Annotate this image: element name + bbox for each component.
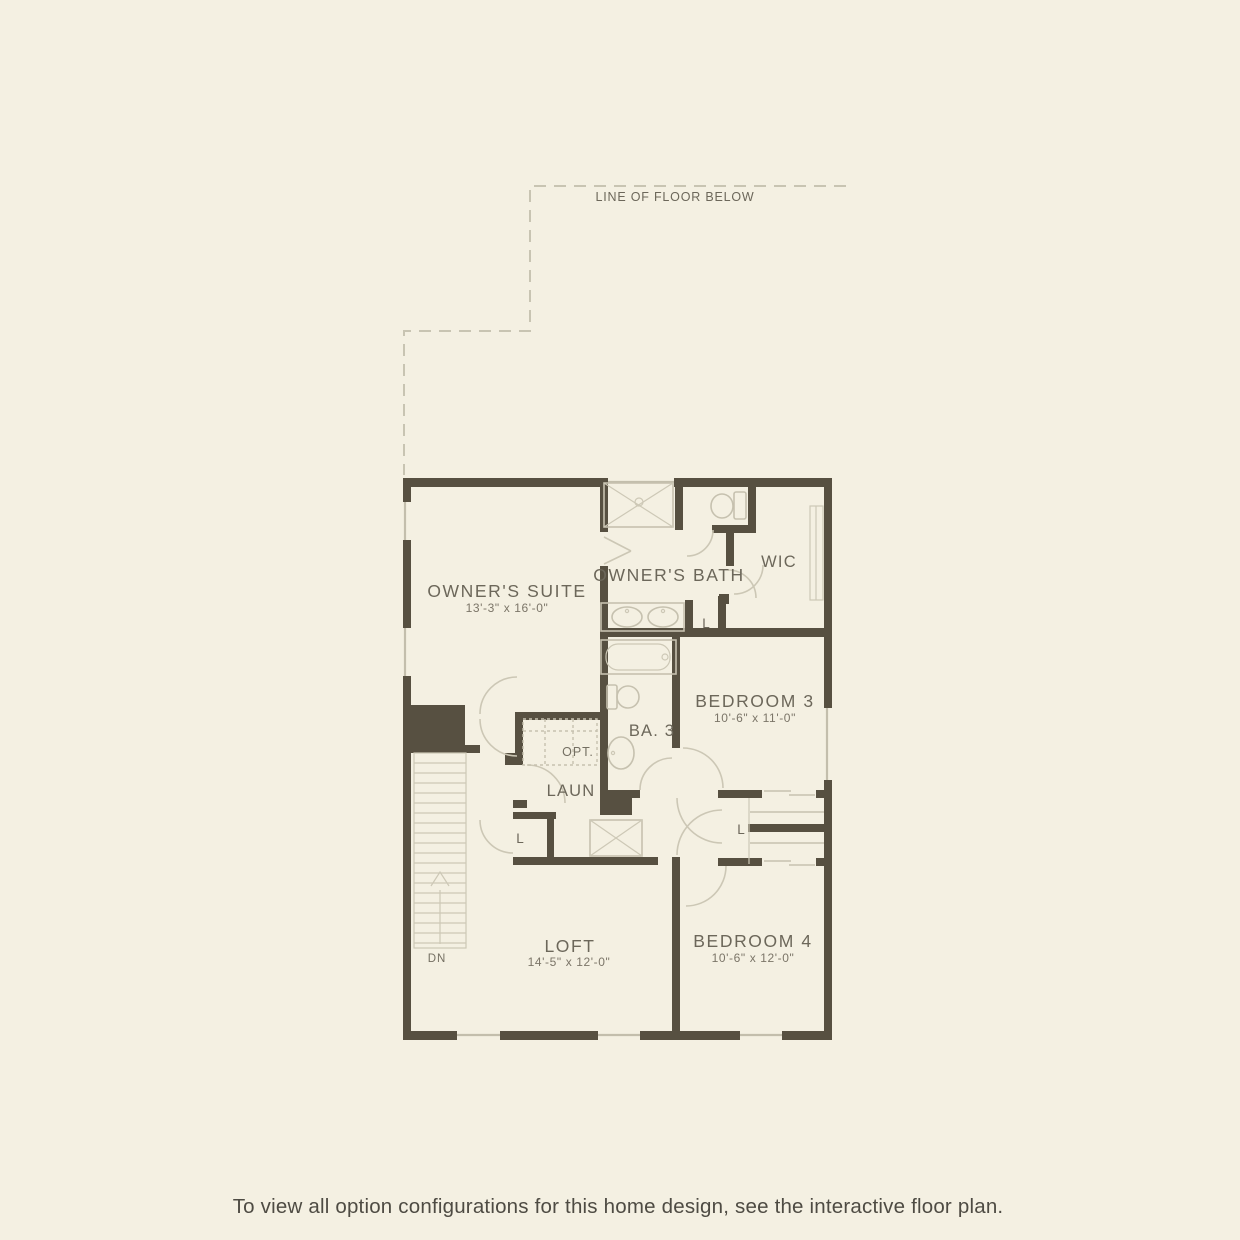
loft-closet-door-arc — [480, 820, 513, 853]
bath-3-door-arc — [640, 758, 672, 790]
bath-entry-door-leaf-2 — [604, 551, 631, 564]
laundry-label: LAUN — [547, 782, 596, 800]
second-floor-plan: LINE OF FLOOR BELOW — [0, 0, 1240, 1240]
owners-suite-dims: 13'-3" x 16'-0" — [466, 601, 549, 615]
bath-entry-door-leaf — [604, 537, 631, 551]
bedroom-4-dims: 10'-6" x 12'-0" — [712, 951, 795, 965]
loft-dims: 14'-5" x 12'-0" — [528, 955, 611, 969]
owners-bath-toilet — [711, 492, 746, 519]
shower — [604, 483, 673, 527]
bath-3-sink — [608, 737, 634, 769]
linen-closet-label-hall: L — [737, 822, 745, 837]
bedroom-3-label: BEDROOM 3 — [695, 691, 814, 711]
owners-bath-label: OWNER'S BATH — [593, 565, 745, 585]
footer-note: To view all option configurations for th… — [233, 1195, 1004, 1218]
attic-access-box — [590, 820, 642, 856]
linen-closet-label-bath: L — [702, 616, 710, 631]
hall-closet-door-arc — [677, 798, 722, 843]
stairs — [414, 753, 466, 948]
line-of-floor-below-outline — [404, 186, 846, 475]
bath-3-label: BA. 3 — [629, 722, 675, 740]
bedroom-4-label: BEDROOM 4 — [693, 931, 812, 951]
hall-closet-door-arc-2 — [677, 810, 722, 855]
bathtub — [601, 640, 676, 674]
owners-suite-door-arc — [480, 719, 517, 756]
linen-closet-label-loft: L — [516, 831, 524, 846]
wic-shelving — [810, 506, 823, 600]
owners-suite-label: OWNER'S SUITE — [427, 581, 586, 601]
loft-label: LOFT — [544, 936, 595, 956]
wic-label: WIC — [761, 553, 797, 571]
stairs-down-label: DN — [428, 953, 447, 965]
bedroom-3-door-arc — [683, 748, 723, 788]
laundry-optional-label: OPT. — [562, 745, 594, 759]
bedroom-4-door-arc — [686, 866, 726, 906]
floor-plan-page: LINE OF FLOOR BELOW — [0, 0, 1240, 1240]
toilet-room-door-arc — [687, 530, 713, 556]
room-labels: OWNER'S SUITE 13'-3" x 16'-0" OWNER'S BA… — [427, 553, 814, 969]
double-vanity — [601, 603, 684, 631]
line-of-floor-below-label: LINE OF FLOOR BELOW — [596, 190, 755, 204]
bedroom-3-dims: 10'-6" x 11'-0" — [714, 711, 796, 725]
owners-suite-door-arc-2 — [480, 677, 517, 714]
stair-landing-wall — [403, 705, 465, 753]
bath-3-toilet — [607, 685, 639, 709]
